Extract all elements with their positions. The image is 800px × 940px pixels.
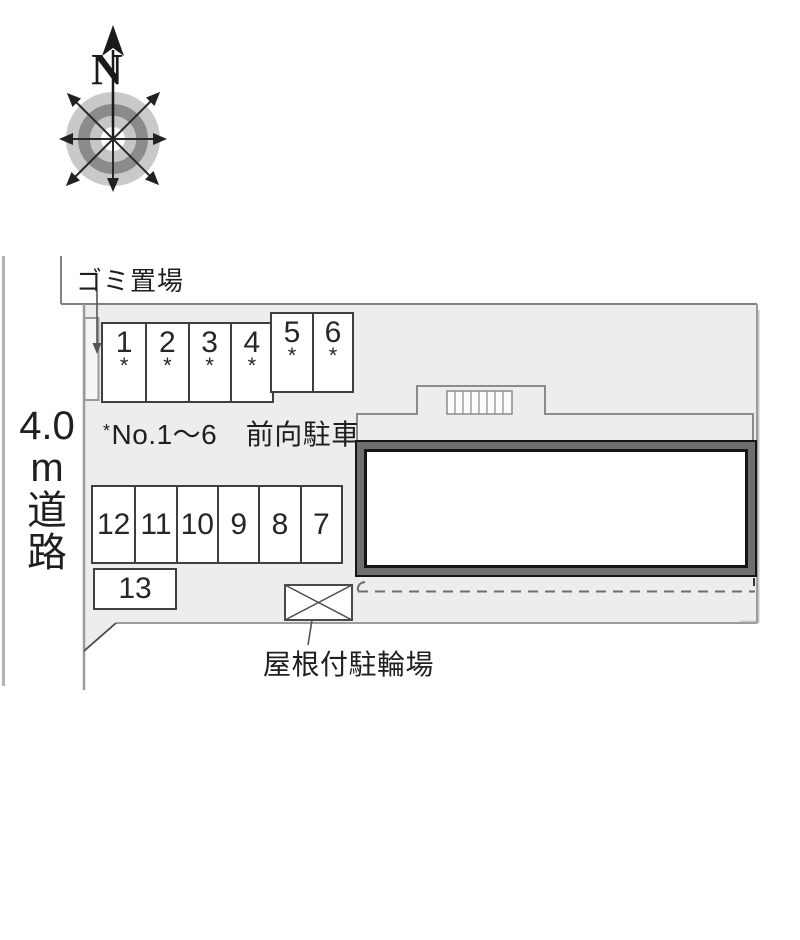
entrance-steps <box>447 391 512 414</box>
stall-number: 13 <box>118 573 151 605</box>
stall-number: 8 <box>272 509 289 541</box>
parking-stall-8: 8 <box>258 487 299 562</box>
parking-stall-1: 1 * <box>103 324 145 401</box>
garbage-area-label: ゴミ置場 <box>76 261 184 298</box>
parking-stall-13: 13 <box>95 570 175 608</box>
parking-row-side: 5 * 6 * <box>270 312 354 393</box>
stall-number: 12 <box>97 509 130 541</box>
building-interior <box>364 449 748 568</box>
parking-stall-12: 12 <box>93 487 134 562</box>
bicycle-parking-marker <box>285 585 352 620</box>
bicycle-parking-label: 屋根付駐輪場 <box>263 643 434 683</box>
compass-rose: N <box>37 14 189 200</box>
stall-number: 9 <box>230 509 247 541</box>
parking-note-text: No.1〜6 前向駐車 <box>112 419 360 450</box>
parking-row-front: 1 * 2 * 3 * 4 * <box>101 322 274 403</box>
parking-note: *No.1〜6 前向駐車 <box>103 413 360 453</box>
stall-star: * <box>163 359 172 373</box>
parking-stall-7: 7 <box>300 487 341 562</box>
stall-star: * <box>205 359 214 373</box>
stall-star: * <box>248 359 257 373</box>
north-label: N <box>91 45 123 94</box>
stall-number: 11 <box>140 509 171 541</box>
stall-number: 7 <box>313 509 330 541</box>
parking-stall-3: 3 * <box>188 324 230 401</box>
parking-row-back: 12 11 10 9 8 7 <box>91 485 343 564</box>
parking-stall-10: 10 <box>176 487 217 562</box>
stall-star: * <box>288 349 297 363</box>
parking-note-bullet: * <box>103 421 111 441</box>
parking-stall-9: 9 <box>217 487 258 562</box>
parking-stall-2: 2 * <box>145 324 187 401</box>
parking-stall-13-box: 13 <box>93 568 177 610</box>
building <box>355 440 757 577</box>
stall-star: * <box>120 359 129 373</box>
road-width-label: 4.0 m 道 路 <box>14 405 80 575</box>
parking-stall-4: 4 * <box>230 324 272 401</box>
parking-stall-6: 6 * <box>312 314 352 391</box>
parking-stall-11: 11 <box>134 487 175 562</box>
stall-number: 10 <box>181 509 214 541</box>
site-plan: N 1 * 2 * 3 * 4 * 5 * 6 * <box>0 0 800 940</box>
stall-star: * <box>329 349 338 363</box>
parking-stall-5: 5 * <box>272 314 312 391</box>
